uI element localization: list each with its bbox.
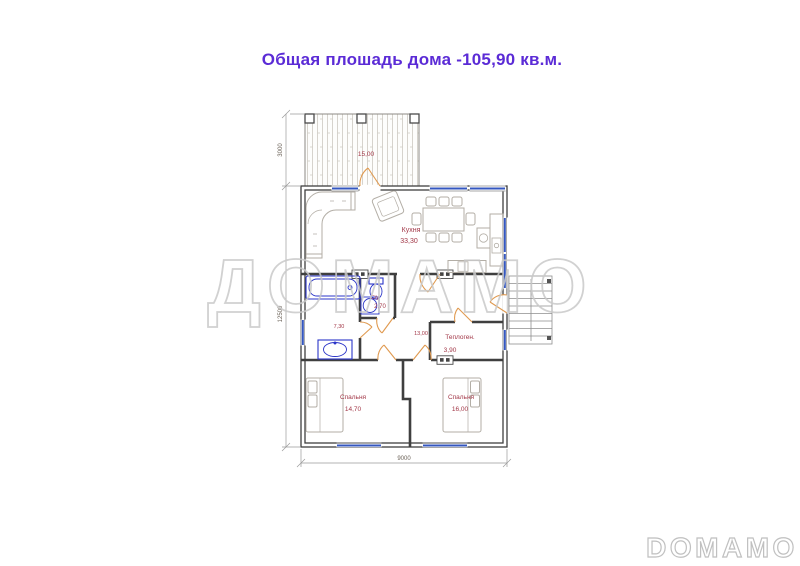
watermark-corner-logo: DOMAMO <box>646 532 798 563</box>
window-top-right-2 <box>470 185 506 192</box>
bedroom-left-label: Спальня <box>340 394 367 401</box>
dim-bottom-width: 9000 <box>397 456 411 462</box>
vent-panel-icon <box>437 356 453 365</box>
boiler-label: Теплоген. <box>445 334 475 341</box>
kitchen-label: Кухня <box>402 227 421 234</box>
floor-plan-page: Общая плошадь дома -105,90 кв.м. 15,00 <box>0 0 800 566</box>
bedroom-left-area: 14,70 <box>345 406 362 413</box>
window-bedroom-left <box>337 443 382 449</box>
window-boiler-right <box>502 330 508 351</box>
entrance-door-gap <box>360 185 381 192</box>
window-top-left <box>332 185 359 192</box>
bedroom-right-label: Спальня <box>448 394 475 401</box>
window-top-right-1 <box>430 185 468 192</box>
hall-area: 13,00 <box>414 331 428 337</box>
watermark-center: ДОМАМО <box>207 244 592 328</box>
window-bedroom-right <box>423 443 468 449</box>
floor-plan-drawing: 15,00 <box>0 0 800 566</box>
dim-terrace-depth: 3000 <box>278 143 284 157</box>
bedroom-right-area: 16,00 <box>452 406 469 413</box>
boiler-area: 3,90 <box>444 347 457 354</box>
terrace-area-label: 15,00 <box>358 151 375 158</box>
